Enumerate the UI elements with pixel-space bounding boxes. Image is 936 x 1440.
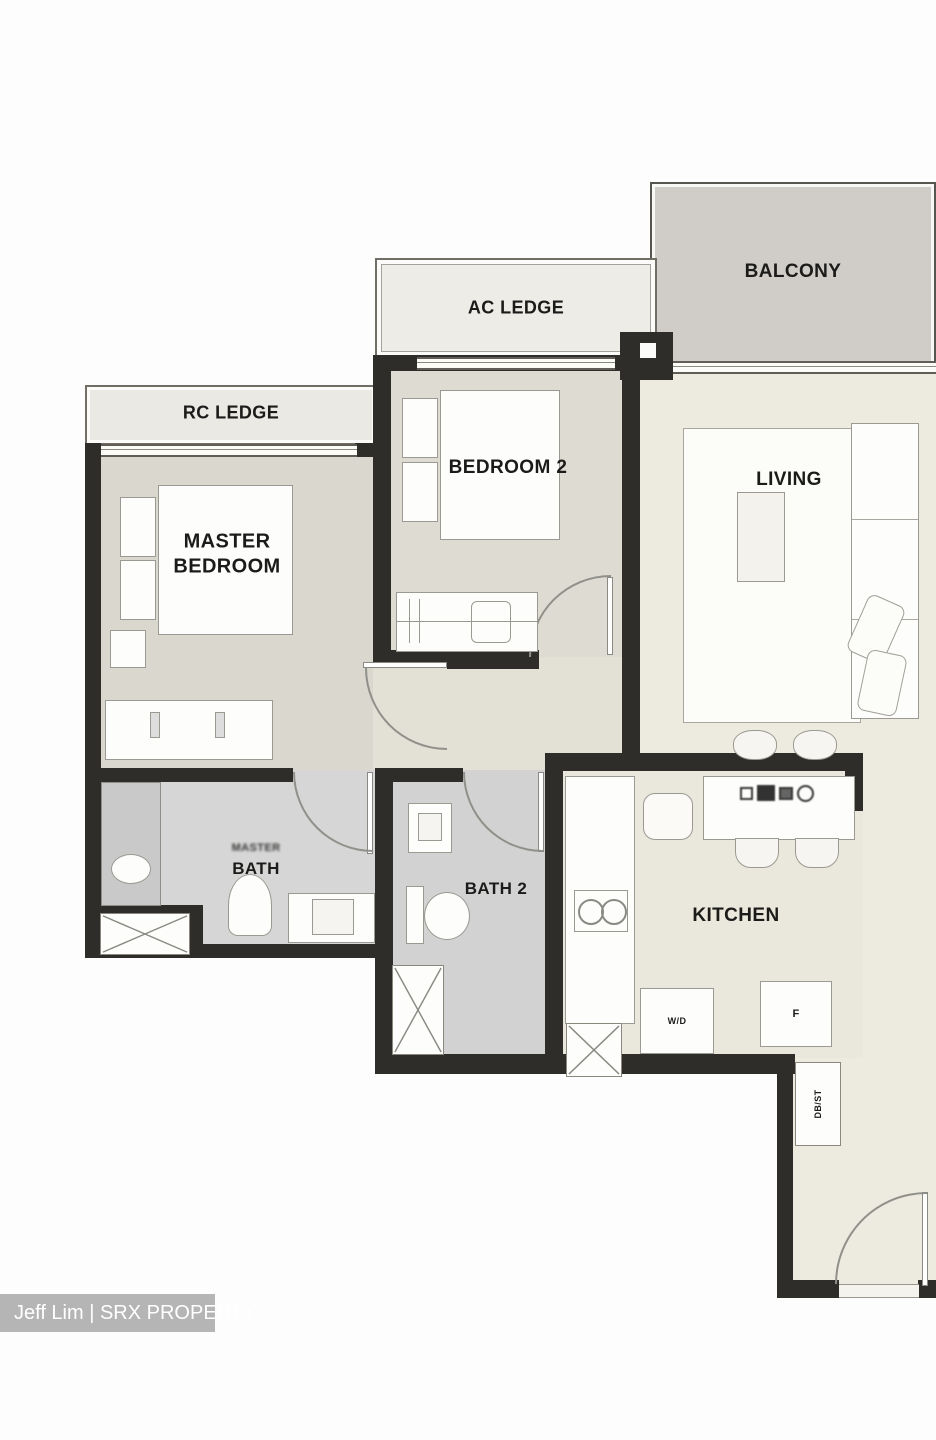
wall-entry-vertical	[777, 1058, 793, 1298]
wall-corridor-stub	[447, 655, 539, 669]
wall-bath2-top	[391, 768, 463, 782]
wall-master-topright-stub	[355, 443, 391, 457]
basin-icon	[418, 813, 442, 841]
bar-stool	[735, 838, 779, 868]
wall-bath2-kitchen	[545, 753, 563, 1070]
living-label: LIVING	[756, 469, 822, 491]
bar-stool	[793, 730, 837, 760]
wall-bath-top	[101, 768, 293, 782]
wall-left	[85, 443, 101, 913]
shaft-cross-icon	[100, 913, 190, 955]
floorplan-canvas: BALCONY AC LEDGE RC LEDGE BEDROOM 2 LIVI…	[0, 0, 936, 1440]
master-bed-pillow	[120, 497, 156, 557]
entry-threshold	[839, 1284, 919, 1298]
wall-bath2-left	[375, 768, 393, 1070]
bath-blurred-label: MASTER	[232, 842, 281, 854]
wall-entry-bottom	[777, 1280, 839, 1298]
bath-vanity-counter	[101, 782, 161, 906]
bath-label: BATH	[232, 859, 280, 879]
balcony-label: BALCONY	[745, 261, 842, 283]
wall-master-right	[373, 355, 391, 665]
bar-stool	[795, 838, 839, 868]
bedroom2-label: BEDROOM 2	[449, 457, 568, 479]
master-bedroom-label-line1: MASTER	[184, 531, 271, 554]
bedroom2-bed-pillow	[402, 398, 438, 458]
shaft-cross-icon	[392, 965, 444, 1055]
rc-ledge-label: RC LEDGE	[183, 403, 279, 424]
basin-icon	[111, 854, 151, 884]
ac-ledge-label: AC LEDGE	[468, 298, 564, 319]
washer-dryer-label: W/D	[668, 1016, 687, 1026]
master-bed-pillow	[120, 560, 156, 620]
bedroom2-window	[417, 357, 615, 370]
toilet-icon	[228, 874, 272, 936]
double-sink-icon	[574, 890, 628, 932]
master-window	[101, 444, 357, 457]
wall-bedroom2-right	[622, 342, 640, 770]
coffee-table	[737, 492, 785, 582]
bath2-label: BATH 2	[465, 879, 528, 899]
shaft-cross-icon	[566, 1023, 622, 1077]
toilet-tank	[406, 886, 424, 944]
master-bedroom-label-line2: BEDROOM	[173, 556, 280, 579]
kitchen-label: KITCHEN	[692, 905, 779, 927]
watermark-bar: Jeff Lim | SRX PROPERTY	[0, 1294, 215, 1332]
outside-mask-bottom-left	[0, 1074, 777, 1300]
fridge-label: F	[792, 1008, 799, 1020]
master-bedside-table	[110, 630, 146, 668]
bedroom2-wardrobe	[396, 592, 538, 652]
balcony-sliding-door	[673, 361, 936, 374]
basin-icon	[312, 899, 354, 935]
bar-stool	[733, 730, 777, 760]
bedroom2-bed-pillow	[402, 462, 438, 522]
watermark-text: Jeff Lim | SRX PROPERTY	[14, 1302, 256, 1324]
dbst-label: DB/ST	[813, 1090, 823, 1119]
master-vanity-counter	[105, 700, 273, 760]
faucet-icon	[150, 712, 160, 738]
kitchen-chair	[643, 793, 693, 840]
faucet-icon	[215, 712, 225, 738]
balcony-corner-notch	[640, 343, 656, 358]
toilet-icon	[424, 892, 470, 940]
hob-and-sink-icon	[740, 782, 818, 806]
